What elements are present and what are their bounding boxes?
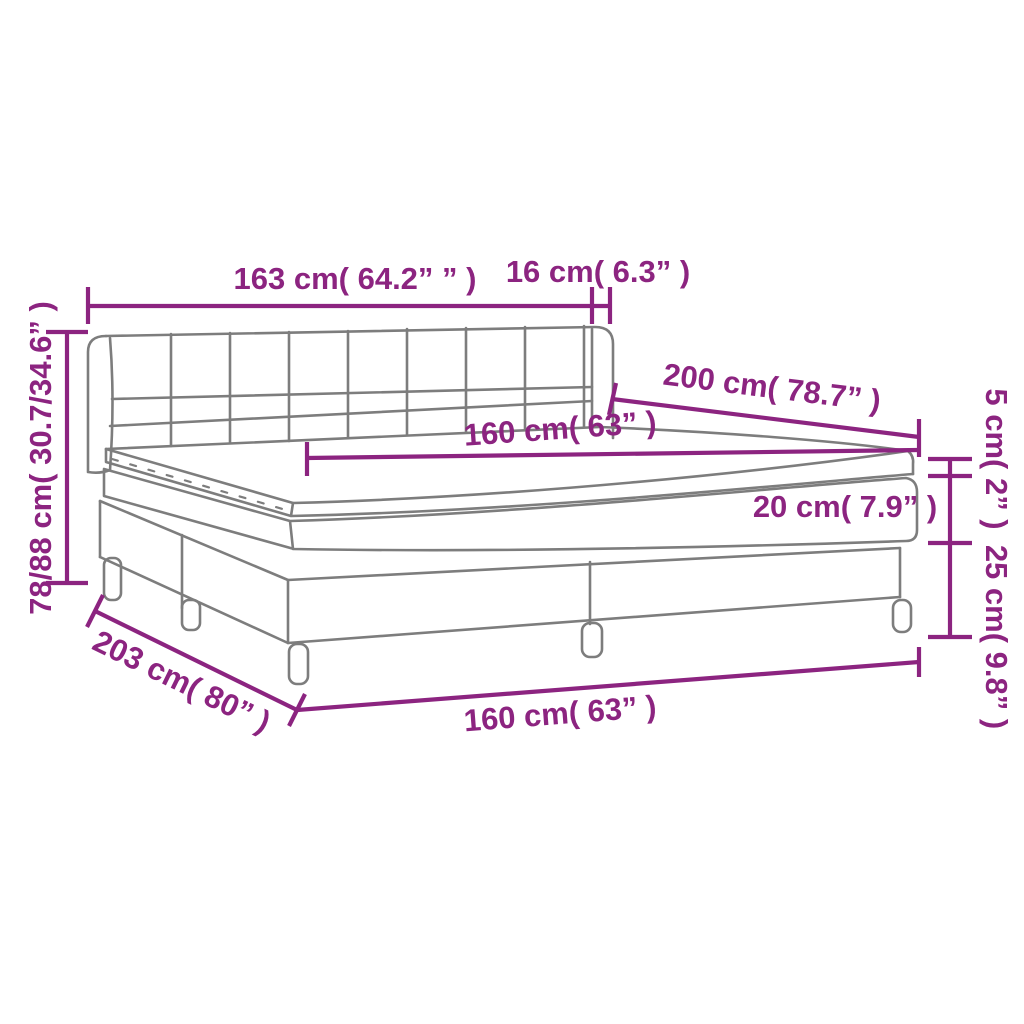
- dimension-label-mattress-thickness: 20 cm( 7.9” ): [753, 489, 937, 524]
- dimension-label-topper-thickness: 5 cm( 2” ): [979, 388, 1014, 529]
- topper-zipper-seam: [112, 459, 286, 510]
- diagram-canvas: 163 cm( 64.2” ” ) 16 cm( 6.3” ) 78/88 cm…: [0, 0, 1024, 1024]
- bed-leg: [289, 644, 308, 684]
- bed-legs: [104, 558, 911, 684]
- dim-height-bracket: [928, 459, 972, 637]
- dimension-label-base-leg-height: 25 cm( 9.8” ): [979, 545, 1014, 729]
- dimension-label-mattress-width-top: 160 cm( 63” ): [463, 404, 658, 452]
- dim-mattress-width-top: [307, 442, 919, 476]
- dimension-label-height-range: 78/88 cm( 30.7/34.6” ): [23, 301, 58, 615]
- bed-leg: [182, 600, 200, 630]
- bed-dimension-diagram: 163 cm( 64.2” ” ) 16 cm( 6.3” ) 78/88 cm…: [0, 0, 1024, 1024]
- headboard: [88, 326, 613, 473]
- headboard-left-wing: [88, 336, 113, 473]
- dimension-label-wing-depth: 16 cm( 6.3” ): [506, 254, 690, 289]
- dimension-label-headboard-width: 163 cm( 64.2” ” ): [234, 261, 477, 296]
- dimension-label-total-length: 203 cm( 80” ): [87, 623, 276, 739]
- bed-leg: [893, 600, 911, 632]
- bed-leg: [582, 623, 602, 657]
